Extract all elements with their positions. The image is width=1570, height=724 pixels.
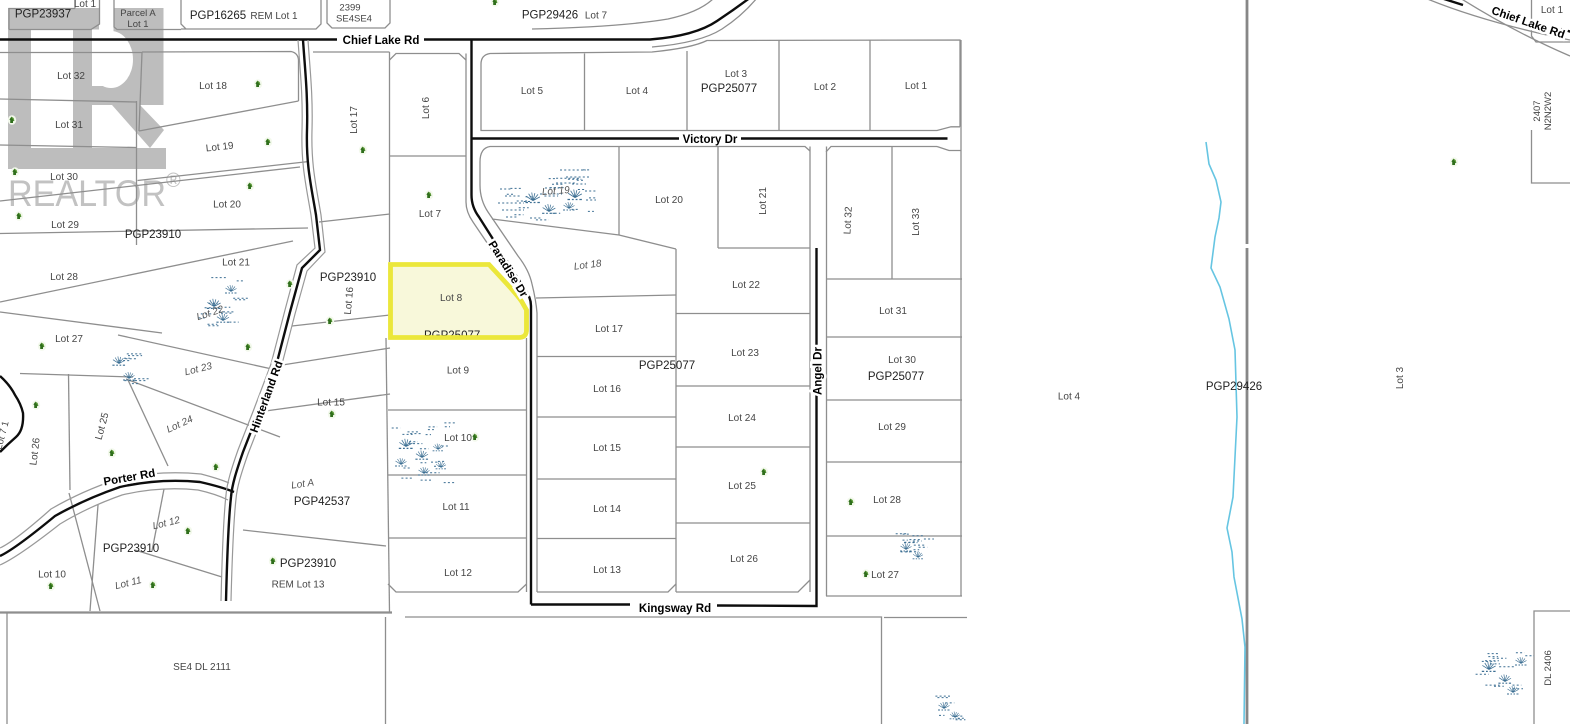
svg-text:PGP23910: PGP23910 [125,229,181,241]
svg-text:PGP29426: PGP29426 [1206,381,1262,393]
svg-text:Lot 13: Lot 13 [593,565,621,576]
svg-text:Lot 26: Lot 26 [730,554,758,565]
svg-text:Lot 1: Lot 1 [905,81,928,92]
svg-text:Lot 1: Lot 1 [1541,5,1564,16]
svg-text:Lot 10: Lot 10 [444,433,472,444]
svg-text:N2N2W2: N2N2W2 [1543,92,1554,131]
svg-text:Lot 27: Lot 27 [871,570,899,581]
svg-text:Lot 28: Lot 28 [50,272,78,283]
svg-text:PGP25077: PGP25077 [701,83,757,95]
svg-text:Lot 31: Lot 31 [879,306,907,317]
svg-text:Lot 23: Lot 23 [731,348,759,359]
svg-text:Lot 8: Lot 8 [440,293,463,304]
svg-text:Victory Dr: Victory Dr [683,134,738,146]
svg-text:PGP29426: PGP29426 [522,10,578,22]
svg-text:Lot 30: Lot 30 [888,355,916,366]
svg-text:2399: 2399 [339,3,360,14]
svg-text:Chief Lake Rd: Chief Lake Rd [343,35,420,47]
svg-text:Lot 22: Lot 22 [732,280,760,291]
svg-text:Lot 1: Lot 1 [74,0,97,10]
svg-text:2407: 2407 [1532,100,1543,121]
svg-text:PGP42537: PGP42537 [294,496,350,508]
svg-text:PGP25077: PGP25077 [868,371,924,383]
svg-text:PGP16265: PGP16265 [190,10,246,22]
svg-text:Lot 9: Lot 9 [447,366,470,377]
svg-text:Lot 32: Lot 32 [842,206,854,235]
svg-text:Lot 33: Lot 33 [911,208,922,236]
svg-text:Lot 10: Lot 10 [38,570,66,581]
svg-text:PGP25077: PGP25077 [639,360,695,372]
svg-text:Lot 30: Lot 30 [50,172,78,183]
svg-text:Lot 5: Lot 5 [521,86,544,97]
svg-text:Lot 18: Lot 18 [199,81,227,92]
svg-text:Lot 29: Lot 29 [51,220,79,231]
svg-text:Lot 4: Lot 4 [626,86,649,97]
svg-text:Lot 7: Lot 7 [585,11,608,22]
svg-text:Lot 17: Lot 17 [349,106,360,134]
svg-text:PGP23910: PGP23910 [320,272,376,284]
svg-text:PGP23910: PGP23910 [280,558,336,570]
svg-text:Lot 7: Lot 7 [419,209,442,220]
svg-text:Lot 20: Lot 20 [655,195,683,206]
svg-text:Lot 3: Lot 3 [725,69,748,80]
svg-text:Lot 15: Lot 15 [317,398,345,409]
svg-text:Lot 6: Lot 6 [421,96,432,119]
svg-text:Lot 29: Lot 29 [878,422,906,433]
svg-text:PGP23910: PGP23910 [103,543,159,555]
svg-text:Lot 1: Lot 1 [127,19,148,30]
svg-text:Lot 14: Lot 14 [593,504,621,515]
svg-text:Angel Dr: Angel Dr [813,347,825,395]
svg-text:Lot 27: Lot 27 [55,334,83,345]
svg-text:Lot 12: Lot 12 [444,568,472,579]
svg-text:Lot 32: Lot 32 [57,71,85,82]
svg-text:Lot 16: Lot 16 [593,384,621,395]
svg-text:Lot 2: Lot 2 [814,82,837,93]
svg-text:SE4SE4: SE4SE4 [336,14,372,25]
svg-text:REM Lot 1: REM Lot 1 [250,11,298,22]
svg-text:PGP23937: PGP23937 [15,9,71,21]
svg-text:Lot 24: Lot 24 [728,413,756,424]
svg-text:Lot 15: Lot 15 [593,443,621,454]
svg-text:Kingsway Rd: Kingsway Rd [639,603,711,615]
svg-text:Lot 19: Lot 19 [542,185,571,198]
svg-text:Parcel A: Parcel A [120,8,156,19]
svg-text:REALTOR: REALTOR [8,173,166,214]
svg-text:Lot 3: Lot 3 [1395,366,1406,389]
svg-text:SE4 DL 2111: SE4 DL 2111 [173,662,231,673]
svg-text:Lot 21: Lot 21 [758,187,769,215]
svg-text:Lot 25: Lot 25 [728,481,756,492]
svg-text:Lot 17: Lot 17 [595,324,623,335]
svg-text:Lot 20: Lot 20 [213,200,241,211]
svg-text:REM Lot 13: REM Lot 13 [272,580,325,591]
svg-text:Lot 28: Lot 28 [873,495,901,506]
svg-text:Lot 31: Lot 31 [55,120,83,131]
svg-text:DL 2406: DL 2406 [1543,650,1554,686]
svg-text:Lot 21: Lot 21 [222,258,250,269]
svg-text:Lot 4: Lot 4 [1058,392,1081,403]
svg-text:Lot 11: Lot 11 [442,502,469,513]
